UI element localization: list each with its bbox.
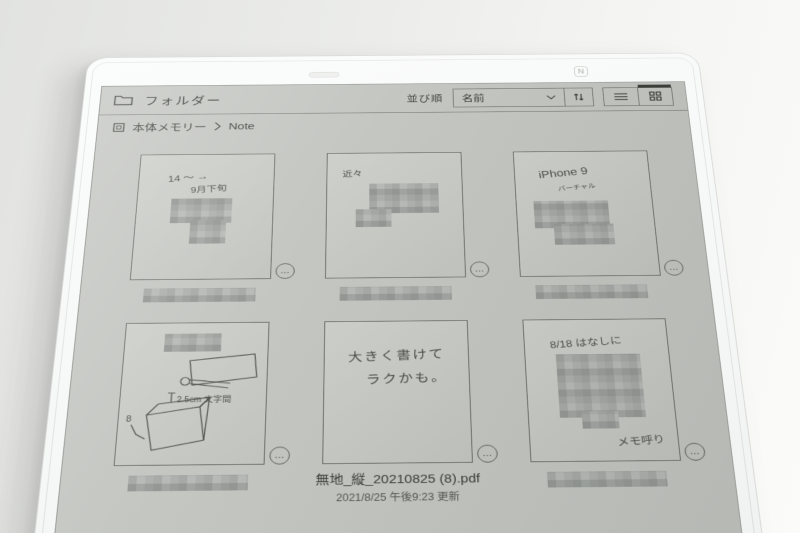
handwriting-line: メモ呼り [616, 430, 666, 449]
censored-file-label [143, 288, 256, 303]
grid-view-button[interactable] [637, 87, 673, 105]
censored-region [356, 209, 392, 227]
folder-icon [113, 95, 134, 106]
list-item: iPhone 9 バーチャル … [507, 150, 669, 299]
page-title: フォルダー [144, 92, 222, 108]
note-thumbnail[interactable]: iPhone 9 バーチャル [513, 150, 661, 276]
grid-view-icon [649, 91, 662, 100]
censored-region [189, 220, 226, 244]
censored-file-label [340, 286, 452, 301]
list-view-button[interactable] [603, 88, 639, 106]
more-options-button[interactable]: … [275, 263, 295, 279]
more-options-button[interactable]: … [477, 445, 498, 463]
more-options-button[interactable]: … [470, 261, 490, 277]
note-thumbnail[interactable]: 8/18 はなしに メモ呼り [522, 318, 681, 462]
censored-file-label [127, 475, 248, 492]
chevron-right-icon [214, 122, 222, 131]
note-thumbnail[interactable]: 近々 [325, 152, 466, 279]
more-options-button[interactable]: … [684, 443, 706, 461]
censored-region [582, 411, 620, 429]
breadcrumb-root[interactable]: 本体メモリー [132, 120, 207, 134]
censored-file-label [535, 284, 648, 299]
more-options-button[interactable]: … [663, 260, 684, 276]
note-thumbnail[interactable]: 大きく書けて ラクかも。 [322, 320, 473, 464]
list-item: 2.5cm 文字間 8 … [103, 322, 275, 507]
list-item: 8/18 はなしに メモ呼り … [516, 318, 692, 502]
note-thumbnail[interactable]: 2.5cm 文字間 8 [114, 322, 270, 466]
nfc-mark: N [574, 66, 589, 76]
view-toggle [602, 87, 674, 106]
svg-text:8: 8 [125, 414, 131, 424]
sort-dropdown[interactable]: 名前 [453, 88, 564, 106]
file-name: 無地_縦_20210825 (8).pdf [315, 469, 480, 488]
more-options-button[interactable]: … [269, 447, 290, 465]
thumbnail-grid: 14 ～ → 9月下旬 … 近々 [58, 135, 737, 507]
list-item: 大きく書けて ラクかも。 … 無地_縦_20210825 (8).pdf 202… [315, 320, 481, 505]
censored-file-label [547, 471, 668, 488]
device-screen: フォルダー 並び順 名前 [40, 81, 759, 533]
handwriting-line: 近々 [342, 167, 363, 179]
handwriting-line: ラクかも。 [366, 366, 448, 388]
handwriting-line: 14 ～ → [168, 169, 209, 185]
e-ink-tablet: N フォルダー 並び順 名前 [18, 53, 782, 533]
sort-direction-button[interactable] [564, 88, 593, 106]
sort-direction-icon [573, 92, 585, 101]
censored-region [556, 354, 646, 418]
handwriting-line: バーチャル [557, 181, 596, 193]
top-bezel-slot [309, 72, 340, 78]
chevron-down-icon [546, 94, 556, 99]
handwriting-line: iPhone 9 [537, 165, 588, 181]
sort-order-label: 並び順 [406, 92, 443, 105]
document-select-icon[interactable] [112, 122, 125, 132]
handwriting-line: 大きく書けて [348, 343, 446, 365]
handwriting-line: 9月下旬 [191, 182, 227, 196]
list-item: 14 ～ → 9月下旬 … [122, 153, 281, 302]
note-thumbnail[interactable]: 14 ～ → 9月下旬 [130, 154, 276, 281]
file-updated-timestamp: 2021/8/25 午後9:23 更新 [315, 489, 481, 505]
breadcrumb-current: Note [228, 121, 255, 132]
censored-region [554, 224, 616, 245]
list-view-icon [614, 93, 628, 101]
list-item: 近々 … [319, 152, 473, 301]
desk-background: N フォルダー 並び順 名前 [0, 0, 800, 533]
handwriting-line: 8/18 はなしに [549, 332, 623, 351]
sketch-boxes: 2.5cm 文字間 8 [115, 323, 269, 464]
sort-dropdown-value: 名前 [462, 91, 541, 104]
